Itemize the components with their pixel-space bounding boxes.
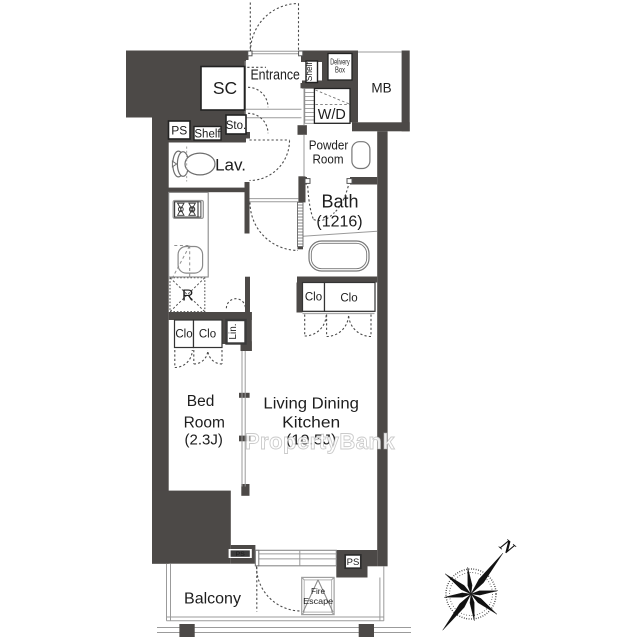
svg-text:Room: Room (313, 151, 344, 166)
svg-text:MB: MB (371, 81, 391, 96)
svg-text:Clo: Clo (199, 329, 216, 341)
svg-text:Room: Room (184, 414, 225, 431)
svg-text:Entrance: Entrance (250, 68, 300, 84)
svg-text:PropertyBank: PropertyBank (245, 429, 396, 454)
svg-text:Lin.: Lin. (228, 323, 239, 339)
svg-text:Clo: Clo (305, 292, 322, 304)
svg-text:Bath: Bath (321, 192, 358, 212)
svg-text:(2.3J): (2.3J) (185, 431, 223, 448)
svg-text:SC: SC (213, 78, 237, 98)
svg-text:PS: PS (171, 124, 187, 138)
svg-text:Fire: Fire (311, 587, 326, 596)
svg-text:R: R (182, 288, 194, 305)
svg-text:Bed: Bed (187, 393, 215, 410)
svg-text:Clo: Clo (340, 293, 357, 305)
svg-text:Balcony: Balcony (184, 591, 241, 608)
svg-text:(1216): (1216) (316, 214, 362, 231)
svg-text:Powder: Powder (309, 138, 349, 153)
svg-text:Escape: Escape (303, 597, 333, 606)
svg-text:Lav.: Lav. (215, 156, 246, 175)
svg-text:Box: Box (335, 66, 345, 75)
svg-text:PS: PS (347, 557, 360, 568)
svg-text:Shelf: Shelf (194, 129, 221, 141)
svg-text:PS: PS (236, 551, 246, 558)
svg-text:Shelf: Shelf (304, 62, 315, 81)
svg-text:Living Dining: Living Dining (263, 395, 359, 412)
svg-text:W/D: W/D (318, 107, 346, 123)
svg-text:Clo: Clo (175, 329, 192, 341)
svg-text:Sto.: Sto. (226, 120, 246, 132)
